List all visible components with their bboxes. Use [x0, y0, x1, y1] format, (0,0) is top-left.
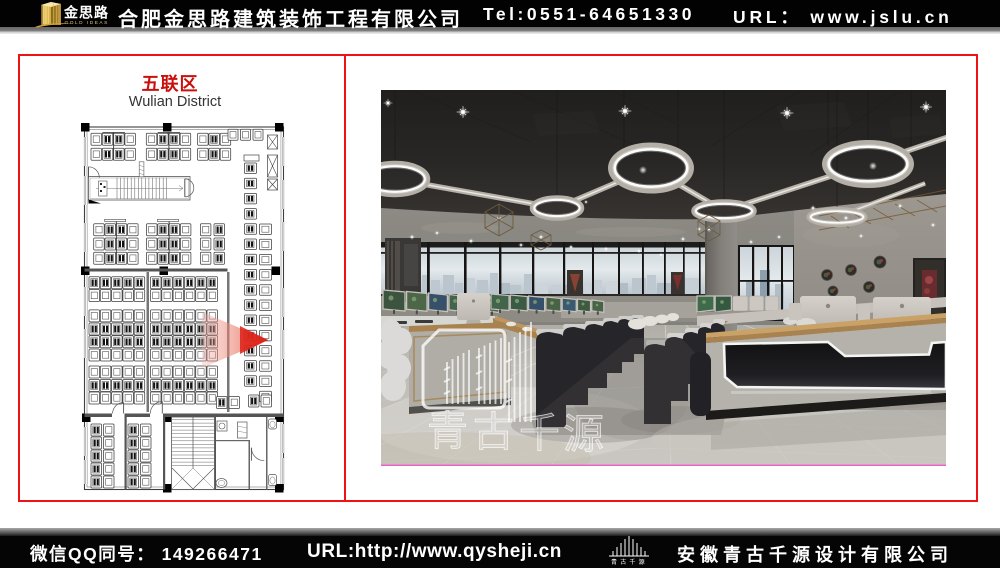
svg-text:金思路: 金思路 [63, 5, 109, 21]
svg-text:青古千源: 青古千源 [611, 558, 648, 566]
svg-text:源: 源 [563, 411, 604, 457]
svg-text:GOLD IDEAS: GOLD IDEAS [65, 20, 109, 26]
svg-text:千: 千 [519, 410, 560, 456]
svg-text:青: 青 [427, 408, 468, 454]
svg-text:古: 古 [473, 409, 514, 455]
